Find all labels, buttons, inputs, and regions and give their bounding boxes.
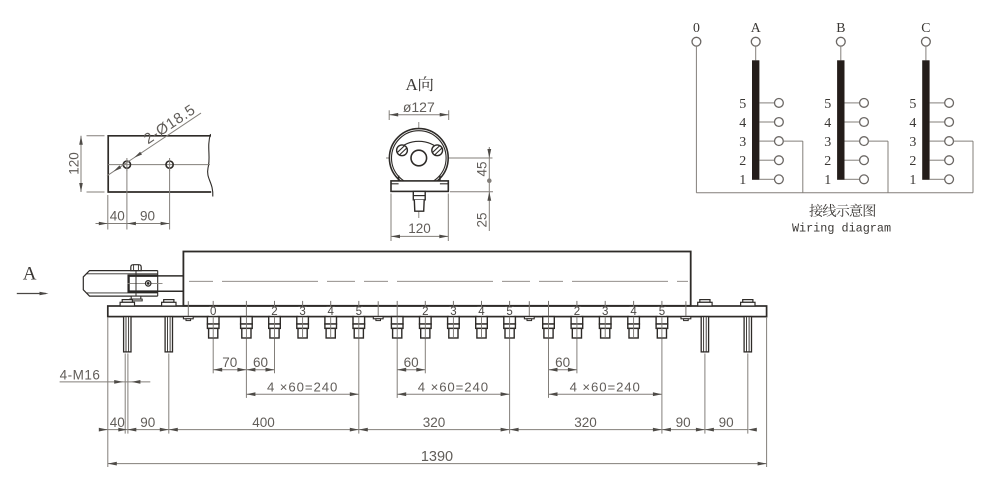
svg-text:4: 4 xyxy=(909,116,916,131)
svg-text:ø127: ø127 xyxy=(403,99,435,115)
svg-text:2: 2 xyxy=(271,306,277,318)
svg-text:400: 400 xyxy=(252,415,275,430)
svg-text:45: 45 xyxy=(474,161,489,176)
svg-text:40: 40 xyxy=(110,415,125,430)
svg-text:0: 0 xyxy=(693,20,700,35)
svg-text:1: 1 xyxy=(909,173,916,188)
svg-text:4-M16: 4-M16 xyxy=(60,367,101,382)
svg-text:3: 3 xyxy=(450,306,456,318)
svg-text:1: 1 xyxy=(739,173,746,188)
svg-text:25: 25 xyxy=(474,212,489,227)
svg-text:4: 4 xyxy=(327,306,334,318)
svg-text:120: 120 xyxy=(408,221,431,236)
svg-text:320: 320 xyxy=(574,415,597,430)
svg-text:A: A xyxy=(405,75,418,94)
svg-text:Wiring diagram: Wiring diagram xyxy=(792,221,891,235)
svg-text:1: 1 xyxy=(824,173,831,188)
svg-text:120: 120 xyxy=(66,152,81,175)
svg-text:320: 320 xyxy=(423,415,446,430)
svg-text:60: 60 xyxy=(555,355,570,370)
svg-text:3: 3 xyxy=(602,306,608,318)
svg-text:4 ×60=240: 4 ×60=240 xyxy=(570,380,641,395)
svg-text:5: 5 xyxy=(356,306,362,318)
svg-text:40: 40 xyxy=(110,209,125,224)
svg-text:4: 4 xyxy=(739,116,746,131)
svg-text:0: 0 xyxy=(210,306,216,318)
svg-text:1390: 1390 xyxy=(421,449,453,465)
svg-text:3: 3 xyxy=(739,135,746,150)
svg-text:4: 4 xyxy=(478,306,485,318)
svg-text:B: B xyxy=(836,20,845,35)
svg-text:70: 70 xyxy=(222,355,237,370)
svg-text:2: 2 xyxy=(574,306,580,318)
svg-text:5: 5 xyxy=(659,306,665,318)
svg-text:A: A xyxy=(23,264,37,285)
svg-text:3: 3 xyxy=(824,135,831,150)
svg-text:90: 90 xyxy=(140,415,155,430)
svg-text:C: C xyxy=(921,20,930,35)
svg-text:3: 3 xyxy=(909,135,916,150)
svg-text:5: 5 xyxy=(506,306,512,318)
svg-text:90: 90 xyxy=(676,415,691,430)
svg-text:2: 2 xyxy=(824,154,831,169)
svg-text:4: 4 xyxy=(824,116,831,131)
svg-text:5: 5 xyxy=(739,97,746,112)
svg-text:3: 3 xyxy=(299,306,305,318)
svg-text:5: 5 xyxy=(824,97,831,112)
svg-text:60: 60 xyxy=(404,355,419,370)
svg-text:60: 60 xyxy=(253,355,268,370)
svg-text:2: 2 xyxy=(909,154,916,169)
svg-text:A: A xyxy=(751,20,761,35)
svg-text:4 ×60=240: 4 ×60=240 xyxy=(418,380,489,395)
svg-text:2: 2 xyxy=(422,306,428,318)
svg-text:5: 5 xyxy=(909,97,916,112)
svg-text:90: 90 xyxy=(719,415,734,430)
svg-text:90: 90 xyxy=(140,209,155,224)
svg-text:4 ×60=240: 4 ×60=240 xyxy=(267,380,338,395)
svg-text:4: 4 xyxy=(630,306,637,318)
svg-text:2: 2 xyxy=(739,154,746,169)
